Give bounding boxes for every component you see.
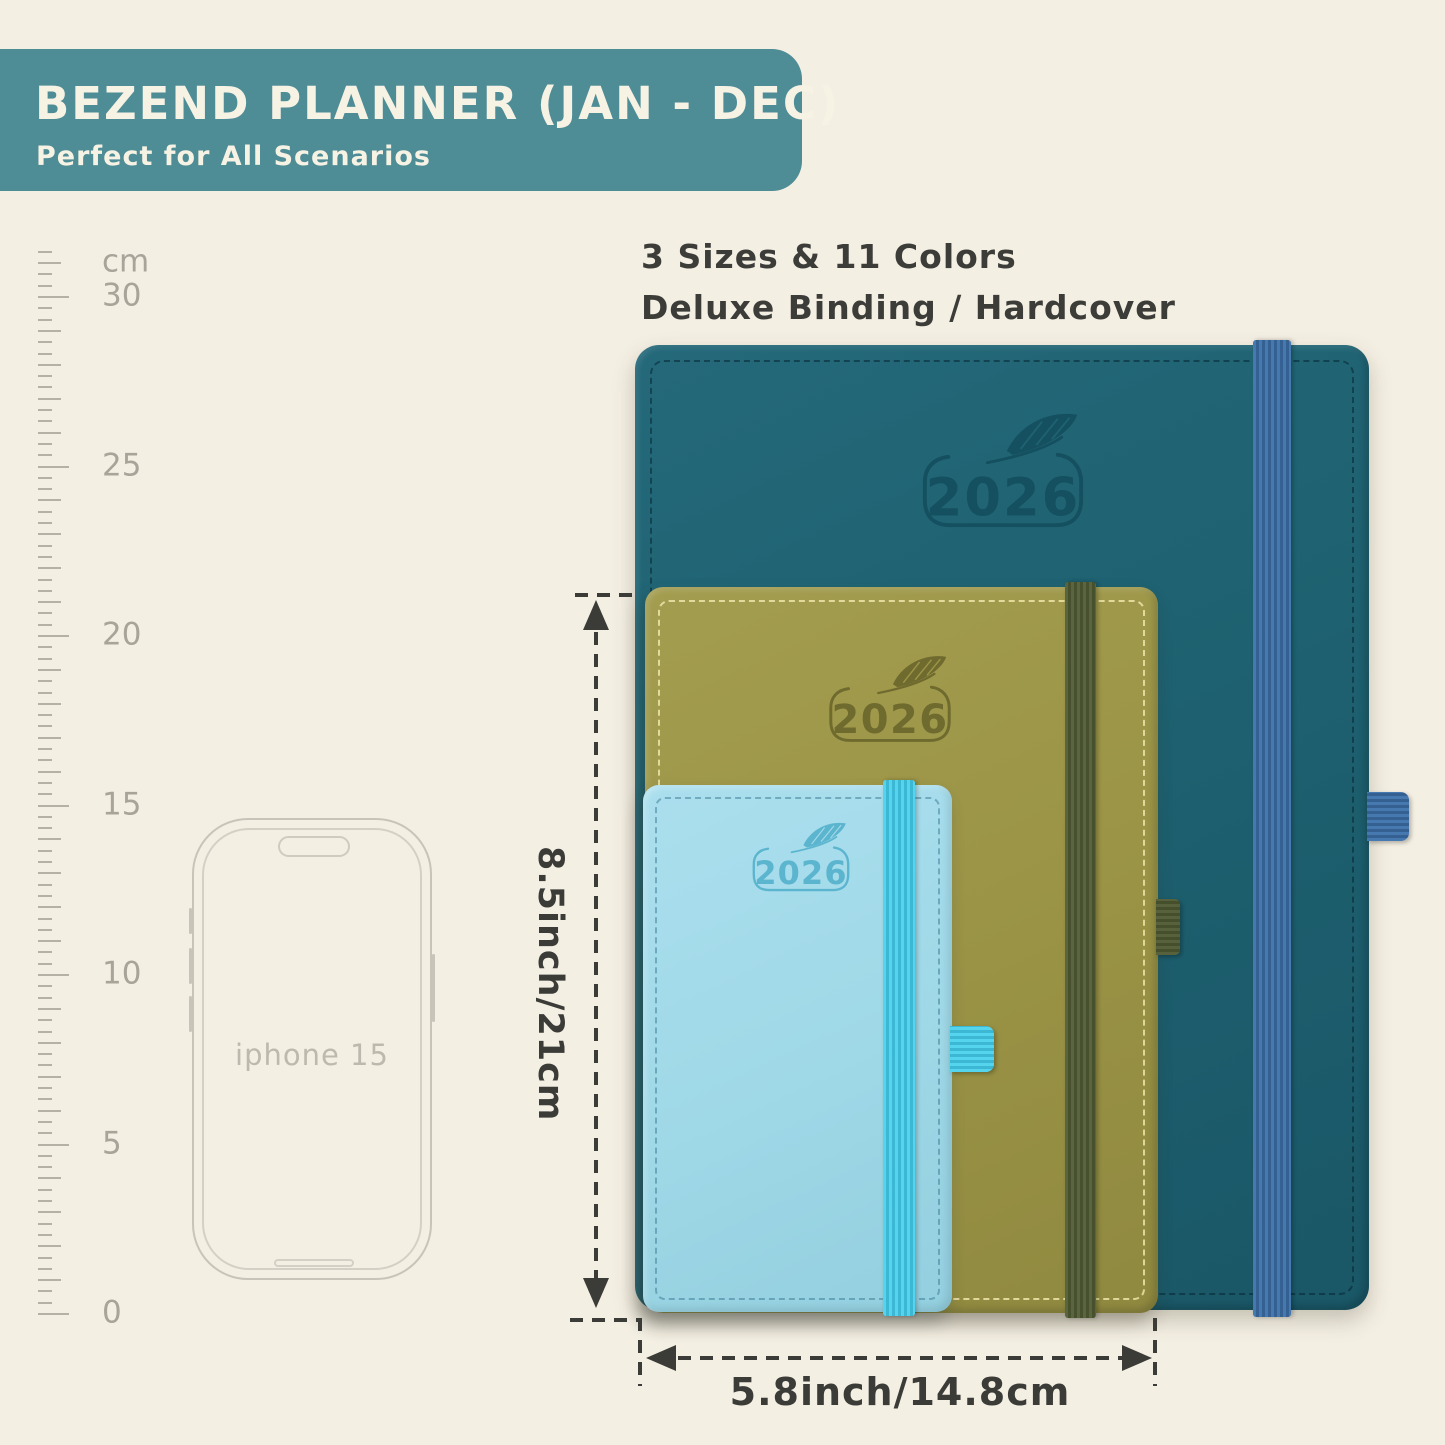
- ruler-tick: [38, 918, 52, 920]
- ruler-tick: [38, 1008, 61, 1010]
- ruler-tick: [38, 1234, 52, 1236]
- planner-large-elastic-band: [1253, 340, 1291, 1317]
- height-dim-top-cap: [575, 593, 639, 597]
- ruler-tick: [38, 1177, 61, 1179]
- ruler-tick: [38, 850, 52, 852]
- ruler-tick: [38, 906, 61, 908]
- ruler-tick: [38, 646, 52, 648]
- ruler-tick: [38, 838, 61, 840]
- ruler-tick: [38, 1257, 52, 1259]
- ruler-tick: [38, 771, 61, 773]
- ruler-tick: [38, 1279, 61, 1281]
- ruler-tick: [38, 556, 52, 558]
- ruler-tick: [38, 929, 52, 931]
- height-dim-arrow-up: [583, 600, 609, 630]
- ruler-tick: [38, 827, 52, 829]
- ruler-tick: [38, 1144, 69, 1146]
- width-dim-arrow-left: [646, 1345, 676, 1371]
- ruler-tick: [38, 251, 52, 253]
- iphone-mute-switch: [189, 908, 192, 934]
- ruler-tick: [38, 782, 52, 784]
- ruler-tick: [38, 285, 52, 287]
- ruler-tick: [38, 499, 61, 501]
- planner-large-pen-loop: [1367, 792, 1409, 841]
- height-dim-bottom-cap: [570, 1318, 640, 1322]
- ruler-tick: [38, 432, 61, 434]
- width-dim-line: [678, 1356, 1123, 1360]
- ruler-tick: [38, 579, 52, 581]
- ruler-tick: [38, 1110, 61, 1112]
- ruler-tick: [38, 330, 61, 332]
- ruler-tick: [38, 477, 52, 479]
- ruler-tick: [38, 590, 52, 592]
- ruler-tick: [38, 522, 52, 524]
- height-dim-label: 8.5inch/21cm: [530, 846, 570, 1086]
- ruler-tick: [38, 1166, 52, 1168]
- feature-sizes-colors: 3 Sizes & 11 Colors: [641, 237, 1017, 276]
- ruler-tick: [38, 612, 52, 614]
- ruler-tick: [38, 1031, 52, 1033]
- ruler-tick: [38, 1302, 52, 1304]
- ruler-tick: [38, 884, 52, 886]
- ruler-tick: [38, 680, 52, 682]
- feature-binding: Deluxe Binding / Hardcover: [641, 288, 1176, 327]
- iphone-dynamic-island: [278, 836, 350, 857]
- ruler-tick: [38, 816, 52, 818]
- ruler-tick: [38, 872, 61, 874]
- ruler-tick: [38, 386, 52, 388]
- ruler-tick: [38, 1290, 52, 1292]
- ruler-label-5: 5: [102, 1125, 122, 1161]
- ruler-tick: [38, 1223, 52, 1225]
- ruler-tick: [38, 985, 52, 987]
- ruler-tick: [38, 703, 61, 705]
- ruler-tick: [38, 1155, 52, 1157]
- product-infographic: BEZEND PLANNER (JAN - DEC) Perfect for A…: [0, 0, 1445, 1445]
- planner-small-2026-emblem: 2026: [742, 818, 860, 896]
- ruler-tick: [38, 793, 52, 795]
- ruler-tick: [38, 511, 52, 513]
- ruler-tick: [38, 1200, 52, 1202]
- ruler-label-10: 10: [102, 955, 141, 991]
- ruler-tick: [38, 398, 61, 400]
- ruler-tick: [38, 1211, 61, 1213]
- ruler-tick: [38, 658, 52, 660]
- svg-text:2026: 2026: [754, 854, 847, 892]
- ruler-tick: [38, 1313, 69, 1315]
- ruler-tick: [38, 963, 52, 965]
- ruler-tick: [38, 940, 61, 942]
- ruler-tick: [38, 466, 69, 468]
- iphone-outline: iphone 15: [192, 818, 432, 1280]
- ruler-tick: [38, 997, 52, 999]
- ruler-tick: [38, 714, 52, 716]
- ruler-tick: [38, 341, 52, 343]
- ruler-tick: [38, 624, 52, 626]
- ruler-tick: [38, 375, 52, 377]
- ruler-tick: [38, 545, 52, 547]
- ruler-tick: [38, 1053, 52, 1055]
- ruler-tick: [38, 951, 52, 953]
- svg-text:2026: 2026: [926, 467, 1081, 528]
- ruler-tick: [38, 488, 52, 490]
- width-dim-right-cap: [1153, 1318, 1157, 1386]
- ruler-tick: [38, 1121, 52, 1123]
- ruler-tick: [38, 737, 61, 739]
- ruler-tick: [38, 364, 61, 366]
- ruler-tick: [38, 725, 52, 727]
- ruler-label-cm: cm: [102, 243, 149, 279]
- ruler-tick: [38, 273, 52, 275]
- ruler-tick: [38, 635, 69, 637]
- ruler-tick: [38, 443, 52, 445]
- ruler-tick: [38, 533, 61, 535]
- planner-large-2026-emblem: 2026: [905, 406, 1101, 535]
- ruler-tick: [38, 296, 69, 298]
- ruler-tick: [38, 895, 52, 897]
- ruler-label-0: 0: [102, 1294, 122, 1330]
- planner-small-pen-loop: [950, 1026, 994, 1072]
- planner-medium-2026-emblem: 2026: [816, 650, 964, 748]
- ruler-tick: [38, 1098, 52, 1100]
- width-dim-label: 5.8inch/14.8cm: [700, 1370, 1100, 1414]
- svg-text:2026: 2026: [831, 697, 948, 743]
- ruler-tick: [38, 1087, 52, 1089]
- ruler-tick: [38, 1076, 61, 1078]
- ruler-tick: [38, 1019, 52, 1021]
- ruler-tick: [38, 805, 69, 807]
- iphone-speaker-slot: [274, 1259, 354, 1267]
- ruler-tick: [38, 319, 52, 321]
- iphone-power-button: [432, 954, 435, 1022]
- ruler-tick: [38, 262, 61, 264]
- ruler-tick: [38, 692, 52, 694]
- iphone-volume-up-button: [189, 948, 192, 984]
- ruler-label-25: 25: [102, 447, 141, 483]
- ruler-tick: [38, 1189, 52, 1191]
- planner-medium-elastic-band: [1065, 582, 1096, 1318]
- ruler-tick: [38, 861, 52, 863]
- height-dim-line: [594, 632, 598, 1278]
- ruler-tick: [38, 1132, 52, 1134]
- ruler-tick: [38, 307, 52, 309]
- ruler-tick: [38, 420, 52, 422]
- height-dim-arrow-down: [583, 1278, 609, 1308]
- ruler-tick: [38, 1042, 61, 1044]
- ruler-tick: [38, 601, 61, 603]
- ruler-tick: [38, 409, 52, 411]
- width-dim-left-cap: [638, 1318, 642, 1386]
- planner-medium-pen-loop: [1156, 899, 1180, 955]
- iphone-volume-down-button: [189, 996, 192, 1032]
- ruler-tick: [38, 1245, 61, 1247]
- ruler-tick: [38, 1064, 52, 1066]
- ruler-label-20: 20: [102, 616, 141, 652]
- planner-small-elastic-band: [883, 780, 915, 1316]
- width-dim-arrow-right: [1122, 1345, 1152, 1371]
- ruler-tick: [38, 748, 52, 750]
- ruler-tick: [38, 454, 52, 456]
- ruler-tick: [38, 353, 52, 355]
- ruler-tick: [38, 1268, 52, 1270]
- ruler-label-30: 30: [102, 277, 141, 313]
- ruler-label-15: 15: [102, 786, 141, 822]
- ruler-tick: [38, 974, 69, 976]
- ruler-tick: [38, 669, 61, 671]
- ruler: cm302520151050: [0, 0, 160, 1445]
- ruler-tick: [38, 759, 52, 761]
- iphone-label: iphone 15: [194, 1038, 430, 1072]
- ruler-tick: [38, 567, 61, 569]
